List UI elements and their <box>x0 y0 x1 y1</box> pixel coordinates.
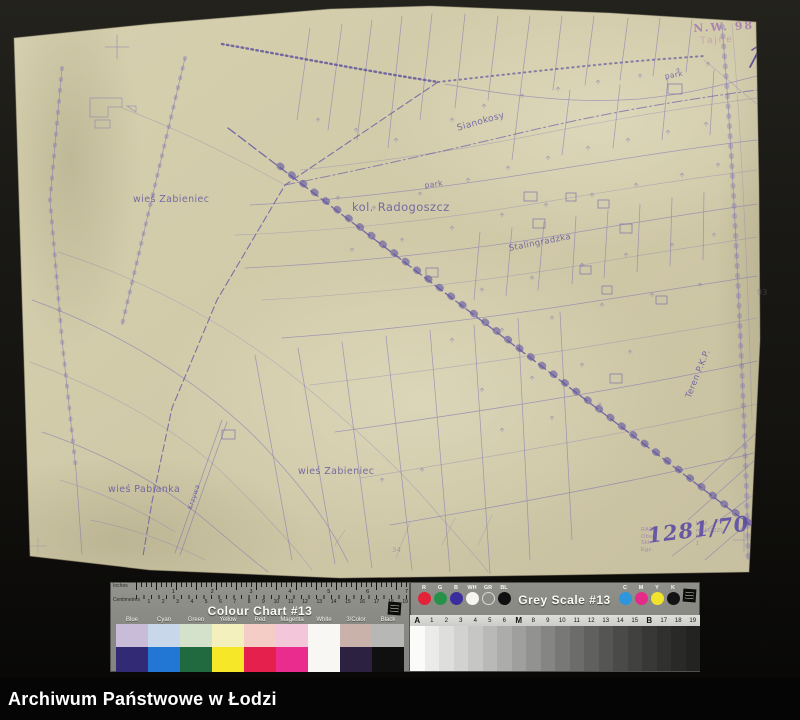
colour-column: White <box>308 617 340 672</box>
colour-swatch-columns: Blue Cyan Green Yellow Red Magenta <box>110 617 410 672</box>
dot-label: M <box>639 585 644 592</box>
dot-swatch <box>434 592 447 605</box>
colour-chart-card: Inches 1234567 Centimetres 1234567891011… <box>110 582 410 672</box>
colour-column-label: White <box>308 617 340 624</box>
dot-swatch <box>418 592 431 605</box>
colour-column-label: Black <box>372 617 404 624</box>
saturated-swatch <box>244 647 276 672</box>
grey-step-swatch <box>671 626 686 671</box>
grey-step-swatch <box>439 626 454 671</box>
grey-step-swatch <box>497 626 512 671</box>
maker-logo-patch <box>388 602 402 616</box>
maker-logo-patch <box>683 589 697 603</box>
colour-column: Magenta <box>276 617 308 672</box>
grey-scale-card: R G B WH GR BL Grey Scal <box>410 582 700 672</box>
colour-column: Blue <box>116 617 148 672</box>
dot-swatch <box>651 592 664 605</box>
saturated-swatch <box>276 647 308 672</box>
dot-swatch <box>450 592 463 605</box>
pastel-swatch <box>244 624 276 647</box>
pencil-mark: 34 <box>392 546 401 554</box>
dot-label: G <box>438 585 442 592</box>
archive-title: Archiwum Państwowe w Łodzi <box>8 689 277 710</box>
calibration-dot: G <box>432 585 448 605</box>
colour-column: Black <box>372 617 404 672</box>
colour-column: Cyan <box>148 617 180 672</box>
calibration-dot: K <box>665 585 681 605</box>
pastel-swatch <box>180 624 212 647</box>
calibration-dot: GR <box>480 585 496 605</box>
saturated-swatch <box>308 647 340 672</box>
colour-column: Red <box>244 617 276 672</box>
grey-step-labels: A123456M89101112131415B171819 <box>410 615 700 626</box>
ruler-inches-label: Inches <box>113 583 128 589</box>
colour-chart-title: Colour Chart #13 <box>110 604 410 617</box>
dot-label: Y <box>655 585 659 592</box>
grey-step-label: 9 <box>541 618 556 624</box>
saturated-swatch <box>116 647 148 672</box>
dot-swatch <box>466 592 479 605</box>
calibration-dot: BL <box>496 585 512 605</box>
grey-step-label: 1 <box>425 618 440 624</box>
grey-step-swatch <box>512 626 527 671</box>
grey-scale-header: R G B WH GR BL Grey Scal <box>410 582 700 614</box>
stamp-top-right: N.W. 98 Tajne <box>693 19 755 47</box>
grey-step-label: 6 <box>497 618 512 624</box>
calibration-dot: B <box>448 585 464 605</box>
dot-label: WH <box>467 585 476 592</box>
ruler: Inches 1234567 Centimetres 1234567891011… <box>110 582 410 604</box>
grey-step-swatch <box>686 626 701 671</box>
colour-column-label: Blue <box>116 617 148 624</box>
archive-bar: Archiwum Państwowe w Łodzi <box>0 678 800 720</box>
dot-label: BL <box>500 585 507 592</box>
grey-step-label: 17 <box>657 618 672 624</box>
grey-step-label: 18 <box>671 618 686 624</box>
grey-step-swatch <box>613 626 628 671</box>
dot-swatch <box>498 592 511 605</box>
calibration-dot: R <box>416 585 432 605</box>
grey-step-swatch <box>468 626 483 671</box>
calibration-dot: WH <box>464 585 480 605</box>
calibration-dot: M <box>633 585 649 605</box>
grey-step-swatch <box>599 626 614 671</box>
grey-step-label: 4 <box>468 618 483 624</box>
pastel-swatch <box>308 624 340 647</box>
grey-step-label: 13 <box>599 618 614 624</box>
grey-step-swatch <box>454 626 469 671</box>
grey-step-swatches <box>410 626 700 671</box>
dot-label: GR <box>484 585 492 592</box>
saturated-swatch <box>212 647 244 672</box>
dot-label: C <box>623 585 627 592</box>
grey-step-label: 2 <box>439 618 454 624</box>
scan-stage: wieś Żabienieckol. RadogoszczSianokosypa… <box>0 0 800 720</box>
saturated-swatch <box>148 647 180 672</box>
grey-step-label: 15 <box>628 618 643 624</box>
grey-step-swatch <box>570 626 585 671</box>
dot-label: K <box>671 585 675 592</box>
grey-step-swatch <box>410 626 425 671</box>
colour-column-label: Yellow <box>212 617 244 624</box>
pastel-swatch <box>212 624 244 647</box>
colour-column: 3/Color <box>340 617 372 672</box>
pastel-swatch <box>116 624 148 647</box>
colour-column: Yellow <box>212 617 244 672</box>
grey-step-swatch <box>425 626 440 671</box>
dot-swatch <box>635 592 648 605</box>
dot-swatch <box>482 592 495 605</box>
stamp-line: 1 <box>696 541 756 548</box>
grey-scale-title: Grey Scale #13 <box>512 593 617 607</box>
pastel-swatch <box>148 624 180 647</box>
grey-step-label: 19 <box>686 618 701 624</box>
colour-column-label: Green <box>180 617 212 624</box>
grey-step-swatch <box>483 626 498 671</box>
grey-step-swatch <box>657 626 672 671</box>
map-place-label: wieś Pabianka <box>108 484 180 495</box>
colour-column: Green <box>180 617 212 672</box>
pastel-swatch <box>372 624 404 647</box>
grey-step-label: A <box>410 616 425 625</box>
colour-column-label: Red <box>244 617 276 624</box>
grey-step-swatch <box>628 626 643 671</box>
grey-step-label: 8 <box>526 618 541 624</box>
saturated-swatch <box>340 647 372 672</box>
map-place-label: wieś Żabieniec <box>133 194 209 205</box>
colour-column-label: 3/Color <box>340 617 372 624</box>
dot-label: R <box>422 585 426 592</box>
dot-swatch <box>619 592 632 605</box>
grey-step-label: B <box>642 616 657 625</box>
grey-step-label: 10 <box>555 618 570 624</box>
grey-step-label: 12 <box>584 618 599 624</box>
grey-step-swatch <box>584 626 599 671</box>
map-place-label: wieś Żabieniec <box>298 466 374 477</box>
grey-step-swatch <box>555 626 570 671</box>
grey-step-label: 11 <box>570 618 585 624</box>
grey-step-swatch <box>526 626 541 671</box>
grey-step-swatch <box>642 626 657 671</box>
saturated-swatch <box>180 647 212 672</box>
colour-column-label: Magenta <box>276 617 308 624</box>
pencil-mark: 93 <box>757 288 767 297</box>
saturated-swatch <box>372 647 404 672</box>
pastel-swatch <box>276 624 308 647</box>
colour-column-label: Cyan <box>148 617 180 624</box>
map-place-label: kol. Radogoszcz <box>352 200 450 214</box>
calibration-dot: C <box>617 585 633 605</box>
dot-label: B <box>454 585 458 592</box>
grey-step-label: 3 <box>454 618 469 624</box>
grey-step-swatch <box>541 626 556 671</box>
grey-step-label: 14 <box>613 618 628 624</box>
dot-swatch <box>667 592 680 605</box>
calibration-dot: Y <box>649 585 665 605</box>
grey-step-label: 5 <box>483 618 498 624</box>
pastel-swatch <box>340 624 372 647</box>
grey-step-label: M <box>512 616 527 625</box>
